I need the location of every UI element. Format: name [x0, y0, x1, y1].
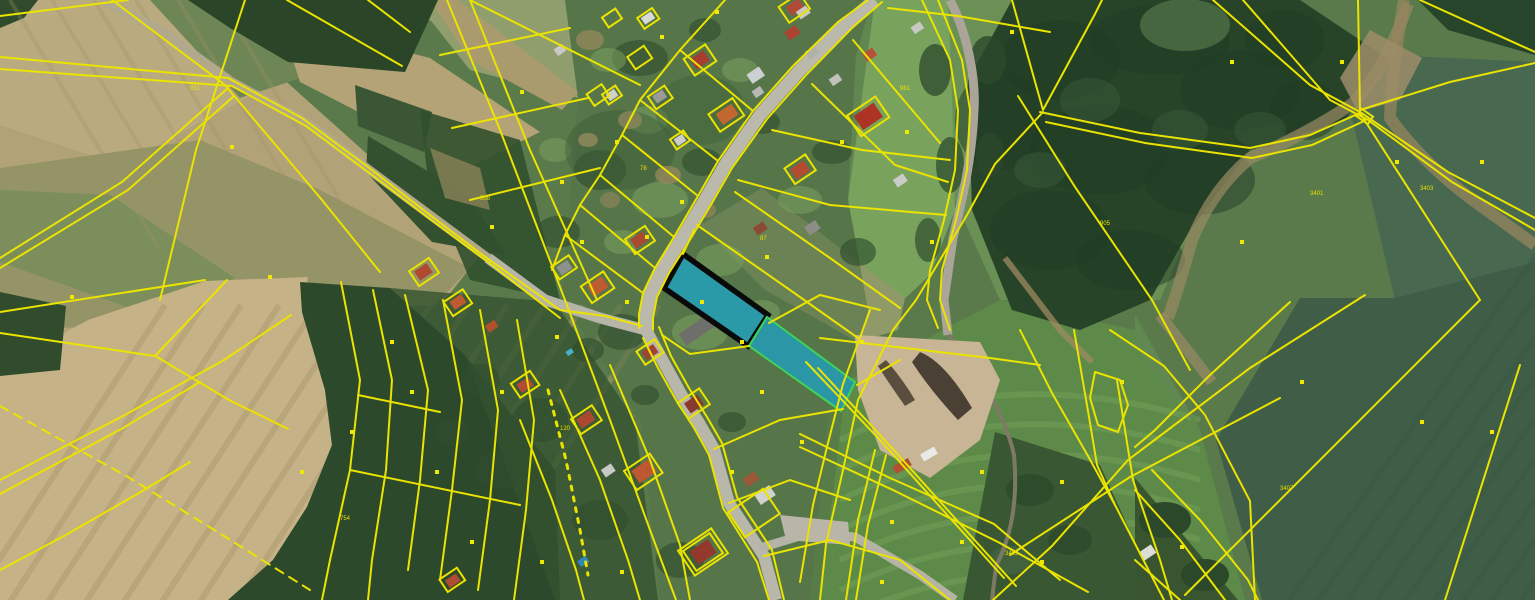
- svg-text:754: 754: [340, 516, 351, 522]
- svg-text:831: 831: [190, 86, 201, 92]
- svg-text:120: 120: [560, 426, 571, 432]
- svg-text:78: 78: [640, 166, 647, 172]
- svg-text:3401: 3401: [1310, 191, 1324, 197]
- svg-text:87: 87: [760, 236, 767, 242]
- svg-text:905: 905: [1100, 221, 1111, 227]
- svg-text:3403: 3403: [1420, 186, 1434, 192]
- svg-text:508: 508: [480, 196, 491, 202]
- svg-text:981: 981: [900, 86, 911, 92]
- svg-text:3409: 3409: [1005, 551, 1019, 557]
- svg-text:3407: 3407: [1280, 486, 1294, 492]
